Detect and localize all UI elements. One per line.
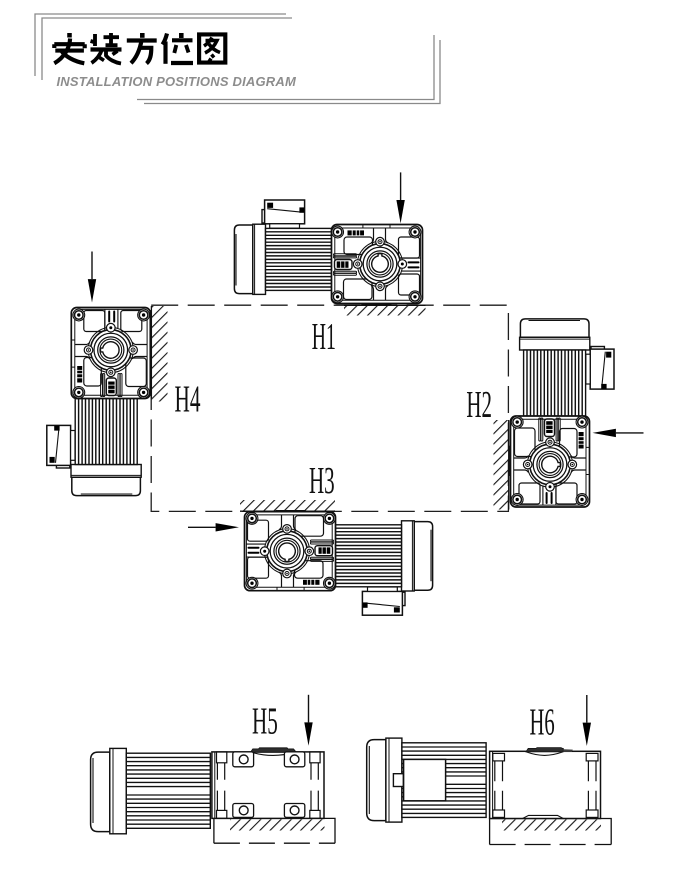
svg-text:H6: H6 <box>530 702 555 744</box>
svg-text:H1: H1 <box>312 316 336 358</box>
svg-text:INSTALLATION POSITIONS DIAGRAM: INSTALLATION POSITIONS DIAGRAM <box>57 74 297 89</box>
svg-text:H3: H3 <box>309 460 335 502</box>
svg-text:H2: H2 <box>466 384 492 426</box>
svg-text:H5: H5 <box>252 701 278 743</box>
svg-text:H4: H4 <box>175 378 201 420</box>
